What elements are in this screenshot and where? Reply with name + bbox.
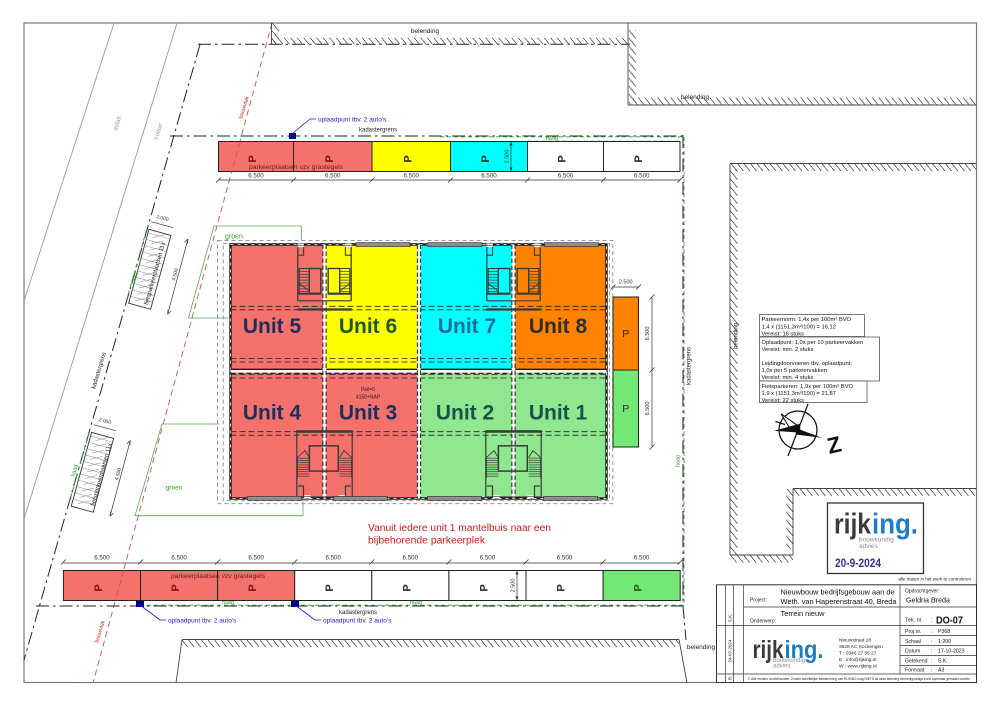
svg-text:W : www.rijking.nl: W : www.rijking.nl: [839, 664, 877, 670]
svg-text:© Alle rechten voorbehouden. Z: © Alle rechten voorbehouden. Zonder schr…: [748, 677, 970, 681]
svg-text:bijbehorende parkeerplek: bijbehorende parkeerplek: [368, 536, 486, 547]
svg-text:alle maten in het werk te cont: alle maten in het werk te controleren: [898, 577, 971, 582]
svg-text:6.500: 6.500: [645, 402, 651, 416]
svg-text:Vereist: min. 2 stuks: Vereist: min. 2 stuks: [762, 347, 814, 353]
svg-text:parkeerplaatsen vzv grastegels: parkeerplaatsen vzv grastegels: [249, 164, 344, 171]
svg-text:6.500: 6.500: [248, 555, 264, 562]
svg-text:Unit 5: Unit 5: [243, 315, 302, 338]
svg-text::: :: [931, 668, 932, 674]
svg-text:Unit 4: Unit 4: [243, 402, 302, 425]
svg-text::: :: [931, 629, 932, 635]
svg-text:oplaadpunt tbv. 2 auto's: oplaadpunt tbv. 2 auto's: [318, 117, 387, 124]
svg-text:2.500: 2.500: [505, 150, 511, 164]
svg-text:T : 0346 27 55 27: T : 0346 27 55 27: [839, 651, 877, 657]
svg-text:E : info@rijking.nl: E : info@rijking.nl: [839, 657, 876, 663]
svg-text:Tek. nr.: Tek. nr.: [905, 618, 923, 624]
svg-text:S.K.: S.K.: [938, 659, 948, 665]
svg-text:Nieuwbouw bedrijfsgebouw aan d: Nieuwbouw bedrijfsgebouw aan de: [781, 588, 895, 597]
svg-text:6.500: 6.500: [645, 327, 651, 341]
svg-text:Parkeernorm: 1,4x per 100m² BV: Parkeernorm: 1,4x per 100m² BVO: [762, 317, 852, 323]
svg-text:Vereist: 16 stuks: Vereist: 16 stuks: [762, 331, 805, 337]
svg-text:parkeerplaatsen vzv grastegels: parkeerplaatsen vzv grastegels: [171, 573, 266, 580]
svg-text:Vanuit iedere unit 1 mantelbui: Vanuit iedere unit 1 mantelbuis naar een: [368, 523, 551, 534]
svg-text:P: P: [401, 584, 413, 591]
svg-text:2.500: 2.500: [511, 579, 517, 593]
svg-text:Nieuwstraat 18: Nieuwstraat 18: [839, 638, 871, 644]
svg-text:S.K.: S.K.: [728, 614, 733, 623]
svg-text:belending: belending: [687, 644, 716, 651]
svg-text:1,9 x (1151,3m²/100) = 21,87: 1,9 x (1151,3m²/100) = 21,87: [762, 391, 837, 397]
svg-text:2.500: 2.500: [619, 280, 633, 286]
svg-text:P368: P368: [938, 629, 950, 635]
svg-text:Unit 7: Unit 7: [438, 315, 496, 338]
svg-text:Unit 2: Unit 2: [436, 402, 494, 425]
svg-text:oplaadpunt tbv. 2 auto's: oplaadpunt tbv. 2 auto's: [323, 618, 392, 625]
svg-text:6.500: 6.500: [94, 555, 110, 562]
svg-text:Terrein nieuw: Terrein nieuw: [781, 609, 826, 618]
svg-text:oplaadpunt tbv. 2 auto's: oplaadpunt tbv. 2 auto's: [168, 618, 237, 625]
svg-text:6.500: 6.500: [404, 173, 420, 180]
svg-text:groen: groen: [225, 234, 243, 241]
svg-text:Unit 3: Unit 3: [339, 402, 397, 425]
svg-text:P: P: [247, 584, 259, 591]
svg-text:17-10-2023: 17-10-2023: [938, 649, 965, 655]
svg-text:P: P: [622, 328, 629, 340]
svg-text:6.500: 6.500: [403, 555, 419, 562]
svg-text::: :: [931, 659, 932, 665]
svg-text:Unit 8: Unit 8: [529, 315, 588, 338]
svg-text:belending: belending: [734, 323, 740, 349]
svg-text:6.500: 6.500: [558, 173, 574, 180]
svg-text:P: P: [478, 584, 490, 591]
svg-text::: :: [931, 639, 932, 645]
svg-text:Leidingdoorvoeren tbv. oplaadp: Leidingdoorvoeren tbv. oplaadpunt:: [762, 361, 853, 367]
svg-text:P: P: [247, 155, 259, 162]
svg-text:6.500: 6.500: [325, 173, 341, 180]
svg-text:Vereist: min. 4 stuks: Vereist: min. 4 stuks: [762, 375, 814, 381]
svg-text:P: P: [557, 155, 569, 162]
svg-text:Geldria Breda: Geldria Breda: [906, 596, 951, 605]
svg-text:6.500: 6.500: [557, 555, 573, 562]
svg-text::: :: [931, 649, 932, 655]
svg-text:P: P: [324, 584, 336, 591]
svg-text:P: P: [633, 584, 645, 591]
svg-text:Unit 6: Unit 6: [339, 315, 397, 338]
svg-text:kadastergrens: kadastergrens: [359, 128, 397, 134]
svg-text:kadastergrens: kadastergrens: [687, 347, 693, 385]
svg-text:P: P: [480, 155, 492, 162]
svg-text:6.500: 6.500: [480, 555, 496, 562]
svg-text:A3: A3: [938, 668, 944, 674]
svg-text:Weth. van Haperenstraat 40, Br: Weth. van Haperenstraat 40, Breda: [781, 597, 898, 606]
svg-text:belending: belending: [681, 94, 710, 101]
svg-text:advies: advies: [773, 664, 790, 670]
svg-text:Onderwerp:: Onderwerp:: [750, 619, 776, 625]
svg-text:P: P: [170, 584, 182, 591]
svg-text:advies: advies: [859, 543, 879, 550]
svg-text:Datum: Datum: [905, 649, 920, 655]
svg-text:Formaat: Formaat: [905, 668, 925, 674]
svg-text:belending: belending: [411, 28, 440, 35]
svg-text:6.500: 6.500: [481, 173, 497, 180]
svg-text:3628 AC Kockengen: 3628 AC Kockengen: [839, 644, 883, 650]
svg-text:6.500: 6.500: [171, 555, 187, 562]
svg-text:Oplaadpunt: 1,0x per 10 parkee: Oplaadpunt: 1,0x per 10 parkeervakken: [762, 340, 864, 346]
svg-text:1:200: 1:200: [938, 639, 951, 645]
svg-text:P: P: [402, 155, 414, 162]
svg-text:6.500: 6.500: [248, 173, 264, 180]
svg-text:Project:: Project:: [750, 598, 767, 604]
svg-text:Unit 1: Unit 1: [529, 402, 588, 425]
svg-text:Getekend: Getekend: [905, 659, 928, 665]
svg-text:Fietsparkeren: 1,9x per 100m²: Fietsparkeren: 1,9x per 100m² BVO: [762, 384, 854, 390]
svg-text:1,0x per 5 parkeervakken: 1,0x per 5 parkeervakken: [762, 368, 827, 374]
svg-text:6.500: 6.500: [325, 555, 341, 562]
svg-text:P: P: [556, 584, 568, 591]
svg-text:haag: haag: [676, 455, 682, 467]
svg-text:Proj.nr.: Proj.nr.: [905, 629, 921, 635]
svg-text:20-9-2024: 20-9-2024: [835, 558, 882, 570]
svg-text:DO-07: DO-07: [936, 616, 963, 627]
svg-text:Vereist: 22 stuks: Vereist: 22 stuks: [762, 398, 805, 404]
svg-text:groen: groen: [166, 485, 183, 492]
svg-text:24-07-2024: 24-07-2024: [728, 639, 733, 663]
svg-text:kadastergrens: kadastergrens: [339, 610, 377, 616]
svg-text:P: P: [622, 403, 629, 415]
svg-text:4150+NAP: 4150+NAP: [356, 395, 381, 401]
svg-text:6.500: 6.500: [634, 555, 650, 562]
svg-text:Peil=0: Peil=0: [361, 387, 375, 393]
svg-text:Schaal: Schaal: [905, 639, 921, 645]
svg-text:1,4 x (1151,3m²/100) = 16,12: 1,4 x (1151,3m²/100) = 16,12: [762, 324, 837, 330]
svg-text:B.: B.: [728, 676, 733, 680]
svg-text:P: P: [633, 155, 645, 162]
svg-text:P: P: [324, 155, 336, 162]
svg-text:6.500: 6.500: [634, 173, 650, 180]
svg-text:P: P: [93, 584, 105, 591]
svg-text:Opdrachtgever:: Opdrachtgever:: [905, 589, 939, 595]
